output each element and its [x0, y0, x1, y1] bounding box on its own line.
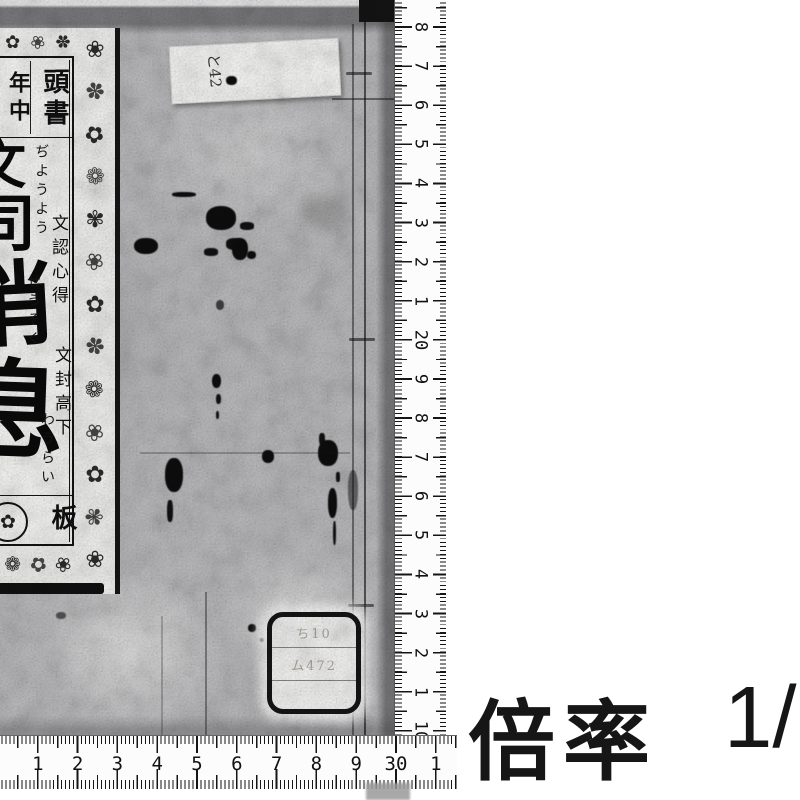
flower-ornament-icon: ❀: [79, 416, 111, 449]
vertical-ruler: 876543212098765432110: [394, 0, 446, 737]
flower-ornament-icon: ❀: [85, 36, 104, 63]
horizontal-ruler-number: 2: [72, 753, 83, 775]
flower-ornament-icon: ❀: [85, 546, 104, 573]
flower-ornament-icon: ✿: [80, 118, 110, 151]
slip-header-right: 頭書: [36, 68, 73, 130]
ink-stain: [232, 238, 248, 260]
flower-ornament-icon: ✽: [79, 330, 111, 363]
magnification-caption: 倍率 1/: [468, 672, 800, 792]
flower-ornament-icon: ❁: [79, 160, 111, 193]
flower-ornament-icon: ✿: [24, 549, 53, 579]
smudge: [300, 196, 350, 226]
top-edge-shadow: [359, 0, 396, 22]
publisher-crest-icon: ✿: [0, 502, 28, 542]
furigana-column: せうそく: [22, 274, 42, 350]
ink-stain: [248, 624, 256, 632]
horizontal-ruler-number: 6: [231, 753, 242, 775]
flower-ornament-icon: ✾: [80, 501, 110, 534]
flower-ornament-icon: ❁: [4, 552, 21, 577]
flower-ornament-icon: ❁: [80, 373, 110, 406]
ink-stain: [165, 458, 183, 492]
slip-header: 頭書 年中: [0, 58, 72, 138]
flower-ornament-icon: ❀: [25, 29, 50, 55]
slip-header-left: 年中: [2, 71, 34, 127]
flower-ornament-icon: ✿: [85, 461, 104, 488]
slip-publisher-area: ✿ 板: [0, 496, 72, 544]
flower-ornament-icon: ❀: [80, 245, 110, 278]
horizontal-ruler-number: 1: [430, 753, 441, 775]
horizontal-ruler-number: 8: [311, 753, 322, 775]
horizontal-ruler-number: 1: [32, 753, 43, 775]
slip-bottom-bar: [0, 583, 104, 594]
ink-stain: [212, 374, 221, 388]
binding-stitch: [349, 338, 375, 341]
gray-smudge: [366, 783, 410, 800]
flower-ornament-icon: ✾: [85, 206, 104, 233]
book-cover: ✿❀✽ ❀✽✿❁✾❀✿✽❁❀✿✾❀ ❁✿❀ 頭書 年中 文 司 消 息: [0, 0, 396, 737]
caption-ratio: 1/: [724, 668, 797, 768]
call-number-label: ち10 ム472: [267, 612, 361, 714]
ink-stain: [206, 206, 236, 230]
flower-ornament-icon: ❀: [50, 549, 77, 579]
title-slip-frame: 頭書 年中 文 司 消 息 ぢようよう せうそく わうらい 文認心得 文封高下: [0, 56, 74, 546]
scan-page: ✿❀✽ ❀✽✿❁✾❀✿✽❁❀✿✾❀ ❁✿❀ 頭書 年中 文 司 消 息: [0, 0, 800, 800]
call-number-row: ち10: [272, 617, 356, 648]
horizontal-ruler-number: 5: [191, 753, 202, 775]
vertical-ruler-number: 10: [410, 705, 432, 737]
title-slip: ✿❀✽ ❀✽✿❁✾❀✿✽❁❀✿✾❀ ❁✿❀ 頭書 年中 文 司 消 息: [0, 28, 120, 594]
binding-stitch: [346, 72, 372, 75]
crease-line: [332, 98, 394, 100]
ink-stain: [328, 488, 337, 518]
spine-crease: [364, 0, 366, 737]
flower-ornament-icon: ✽: [79, 75, 111, 108]
ink-stain: [247, 251, 256, 259]
flower-ornament-icon: ✽: [52, 29, 76, 55]
horizontal-ruler-number: 9: [350, 753, 361, 775]
ink-stain: [226, 76, 237, 85]
floral-border-bottom: ❁✿❀: [0, 546, 76, 582]
floral-border-right: ❀✽✿❁✾❀✿✽❁❀✿✾❀: [76, 28, 114, 581]
binding-stitch: [348, 604, 374, 607]
horizontal-ruler: 20123456789301: [0, 735, 457, 789]
ink-stain: [134, 238, 158, 254]
paste-label-handwriting: と42: [203, 53, 227, 89]
call-number-row: [272, 681, 356, 709]
floral-border-top: ✿❀✽: [0, 28, 76, 56]
crease-line: [161, 616, 163, 736]
crease-line: [140, 452, 350, 454]
caption-prefix: 倍率: [468, 672, 658, 798]
call-number-row: ム472: [272, 648, 356, 681]
paste-label: と42: [169, 38, 342, 105]
horizontal-ruler-number: 7: [271, 753, 282, 775]
horizontal-ruler-number: 30: [385, 753, 408, 775]
ink-stain: [216, 300, 224, 310]
horizontal-ruler-number: 3: [112, 753, 123, 775]
slip-annotation: 文認心得: [46, 214, 71, 310]
ink-stain: [56, 612, 66, 619]
flower-ornament-icon: ✿: [85, 291, 104, 318]
slip-annotation: 文封高下: [49, 346, 74, 442]
crease-line: [205, 592, 207, 735]
flower-ornament-icon: ✿: [5, 32, 20, 53]
publisher-mark: 板: [44, 504, 81, 530]
ink-stain: [172, 192, 196, 197]
slip-title-area: 文 司 消 息 ぢようよう せうそく わうらい 文認心得 文封高下: [0, 138, 72, 496]
horizontal-ruler-number: 4: [151, 753, 162, 775]
